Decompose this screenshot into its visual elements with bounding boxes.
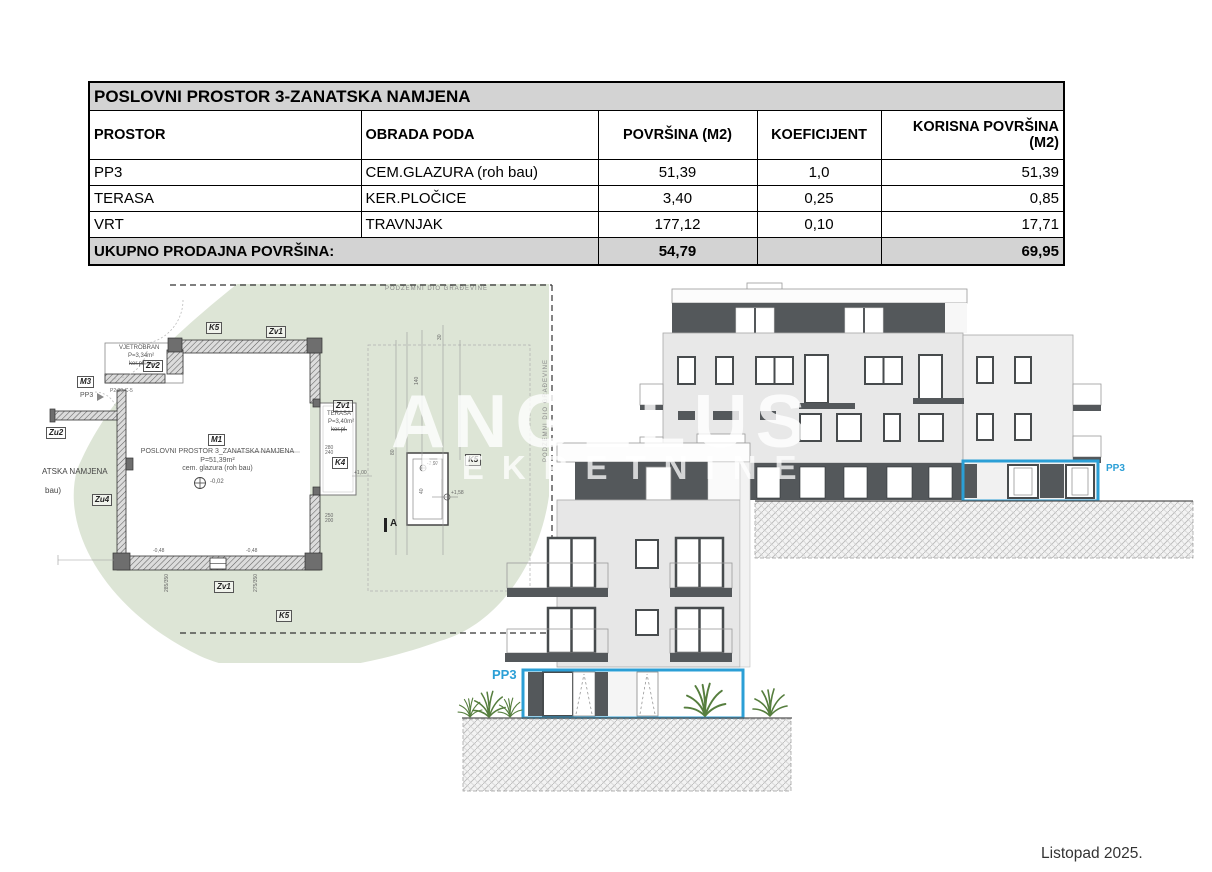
col-header-korisna: KORISNA POVRŠINA (M2) [881,111,1064,160]
table-title-row: POSLOVNI PROSTOR 3-ZANATSKA NAMJENA [89,82,1064,111]
col-header-prostor: PROSTOR [89,111,361,160]
document-page: POSLOVNI PROSTOR 3-ZANATSKA NAMJENA PROS… [0,0,1212,872]
cell-koeficijent: 1,0 [757,160,881,186]
total-korisna: 69,95 [881,238,1064,266]
cell-povrsina: 51,39 [598,160,757,186]
table-total-row: UKUPNO PRODAJNA POVRŠINA: 54,79 69,95 [89,238,1064,266]
col-header-koeficijent: KOEFICIJENT [757,111,881,160]
cell-korisna: 0,85 [881,186,1064,212]
front-ground-hatch [462,718,792,791]
rear-window-stubs [678,411,776,420]
total-povrsina: 54,79 [598,238,757,266]
cell-prostor: TERASA [89,186,361,212]
footer-date: Listopad 2025. [1041,845,1143,863]
table-title: POSLOVNI PROSTOR 3-ZANATSKA NAMJENA [89,82,1064,111]
col-header-obrada: OBRADA PODA [361,111,598,160]
total-label: UKUPNO PRODAJNA POVRŠINA: [89,238,598,266]
cell-povrsina: 177,12 [598,212,757,238]
front-ground-floor [528,672,658,716]
cell-koeficijent: 0,25 [757,186,881,212]
cell-povrsina: 3,40 [598,186,757,212]
table-row: PP3 CEM.GLAZURA (roh bau) 51,39 1,0 51,3… [89,160,1064,186]
table-row: TERASA KER.PLOČICE 3,40 0,25 0,85 [89,186,1064,212]
front-elevation-drawing [455,430,945,810]
cell-prostor: VRT [89,212,361,238]
table-row: VRT TRAVNJAK 177,12 0,10 17,71 [89,212,1064,238]
cell-obrada: CEM.GLAZURA (roh bau) [361,160,598,186]
cell-korisna: 17,71 [881,212,1064,238]
cell-korisna: 51,39 [881,160,1064,186]
cell-obrada: KER.PLOČICE [361,186,598,212]
col-header-povrsina: POVRŠINA (M2) [598,111,757,160]
total-empty [757,238,881,266]
cell-prostor: PP3 [89,160,361,186]
window-symbol [210,558,226,569]
cell-obrada: TRAVNJAK [361,212,598,238]
area-table: POSLOVNI PROSTOR 3-ZANATSKA NAMJENA PROS… [88,81,1065,266]
cell-koeficijent: 0,10 [757,212,881,238]
section-a-bar [384,518,387,532]
pp3-arrow-icon [97,393,104,401]
table-header-row: PROSTOR OBRADA PODA POVRŠINA (M2) KOEFIC… [89,111,1064,160]
level-marker [195,478,206,489]
